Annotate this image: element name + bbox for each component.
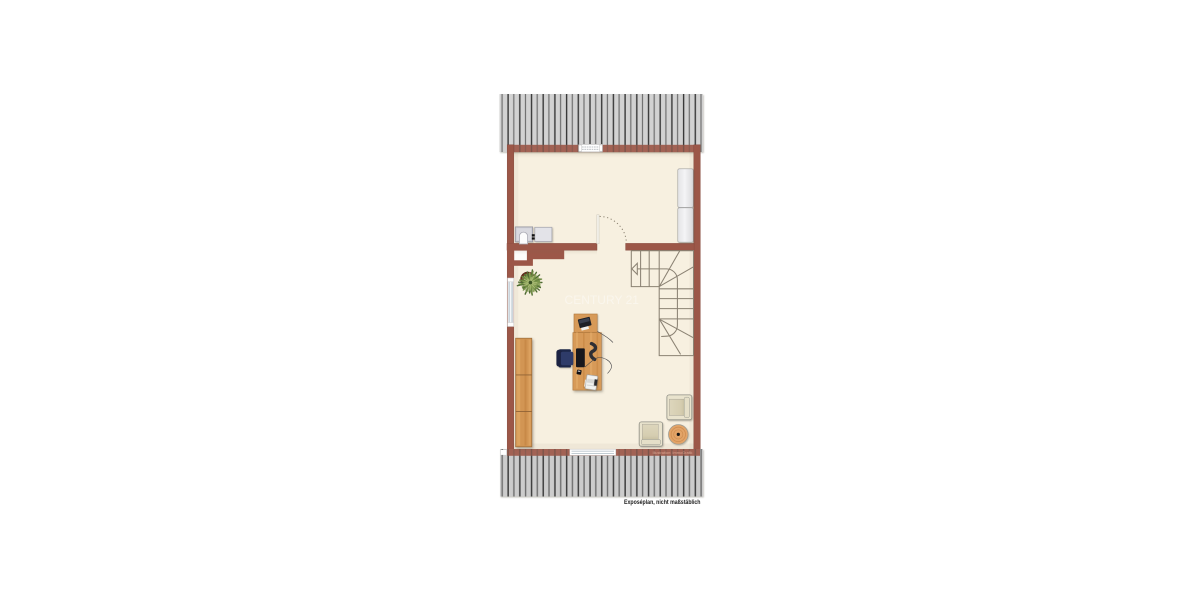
- svg-text:Exposéplan, nicht maßstäblich: Exposéplan, nicht maßstäblich: [624, 499, 701, 506]
- svg-text:Illustration: ImmoGrafik: Illustration: ImmoGrafik: [653, 450, 693, 455]
- svg-text:CENTURY 21: CENTURY 21: [565, 293, 640, 307]
